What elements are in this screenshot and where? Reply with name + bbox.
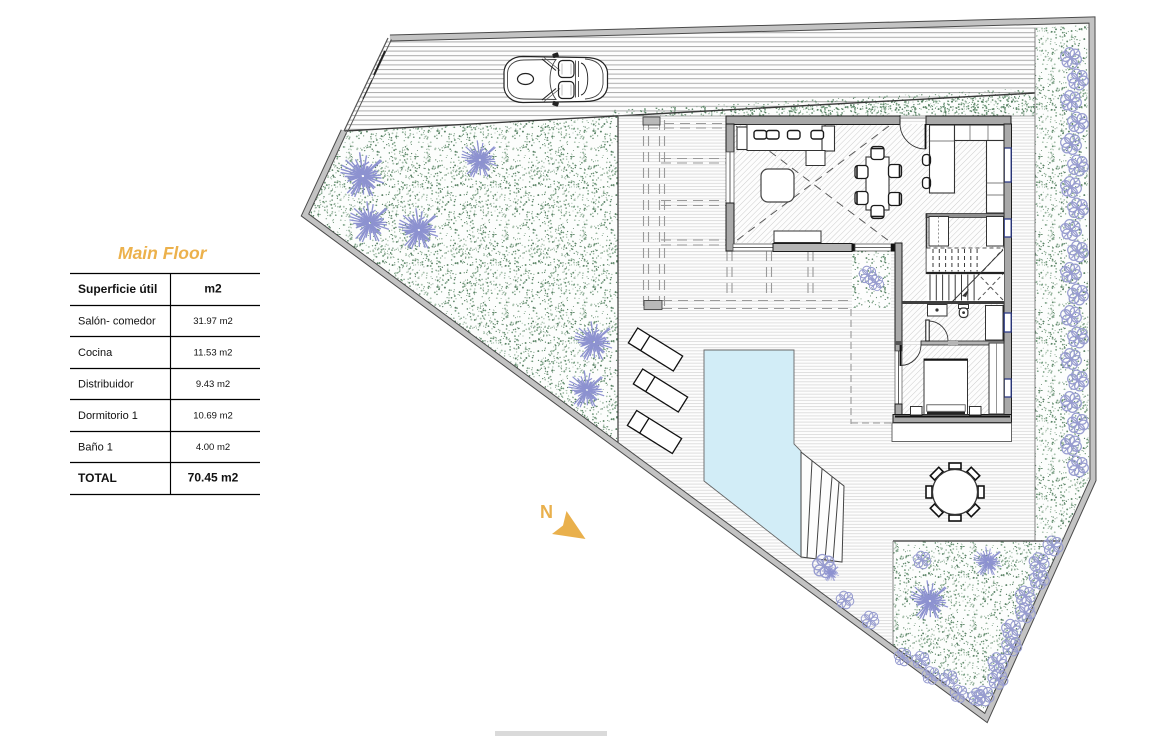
- svg-text:Superficie útil: Superficie útil: [78, 282, 157, 296]
- svg-text:Salón- comedor: Salón- comedor: [78, 316, 156, 328]
- svg-text:11.53 m2: 11.53 m2: [194, 348, 233, 359]
- svg-text:10.69 m2: 10.69 m2: [193, 411, 233, 422]
- svg-text:9.43 m2: 9.43 m2: [196, 379, 230, 390]
- svg-text:70.45 m2: 70.45 m2: [188, 471, 239, 485]
- svg-text:m2: m2: [204, 282, 222, 296]
- svg-text:Distribuidor: Distribuidor: [78, 379, 134, 391]
- svg-text:N: N: [540, 502, 553, 522]
- svg-text:4.00 m2: 4.00 m2: [196, 442, 230, 453]
- svg-text:TOTAL: TOTAL: [78, 471, 117, 485]
- svg-text:Baño 1: Baño 1: [78, 442, 113, 454]
- svg-text:Main Floor: Main Floor: [118, 243, 208, 263]
- svg-text:Cocina: Cocina: [78, 347, 113, 359]
- svg-text:31.97 m2: 31.97 m2: [193, 316, 233, 327]
- svg-text:Dormitorio 1: Dormitorio 1: [78, 410, 138, 422]
